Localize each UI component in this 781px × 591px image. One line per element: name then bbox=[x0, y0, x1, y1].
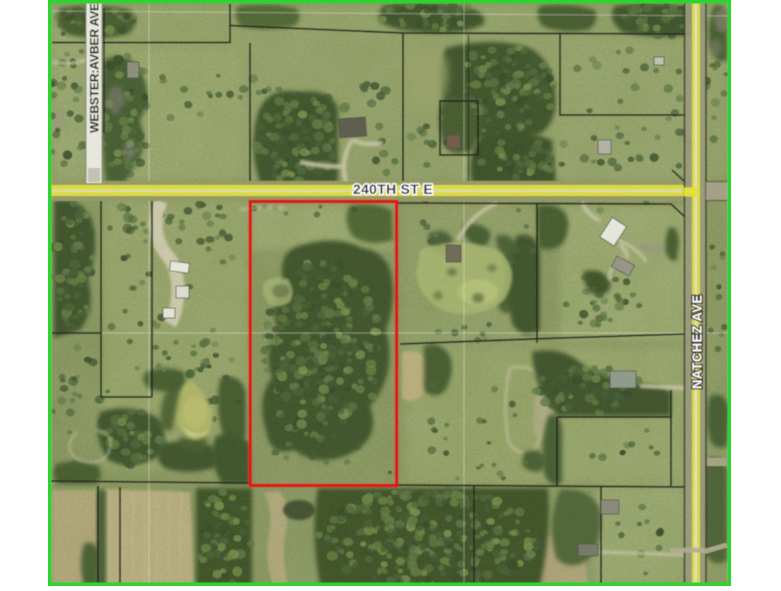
svg-text:WEBSTER:AVBER AVE: WEBSTER:AVBER AVE bbox=[88, 3, 102, 133]
svg-text:NATCHEZ AVE: NATCHEZ AVE bbox=[690, 295, 705, 389]
svg-text:240TH ST E: 240TH ST E bbox=[353, 182, 433, 197]
